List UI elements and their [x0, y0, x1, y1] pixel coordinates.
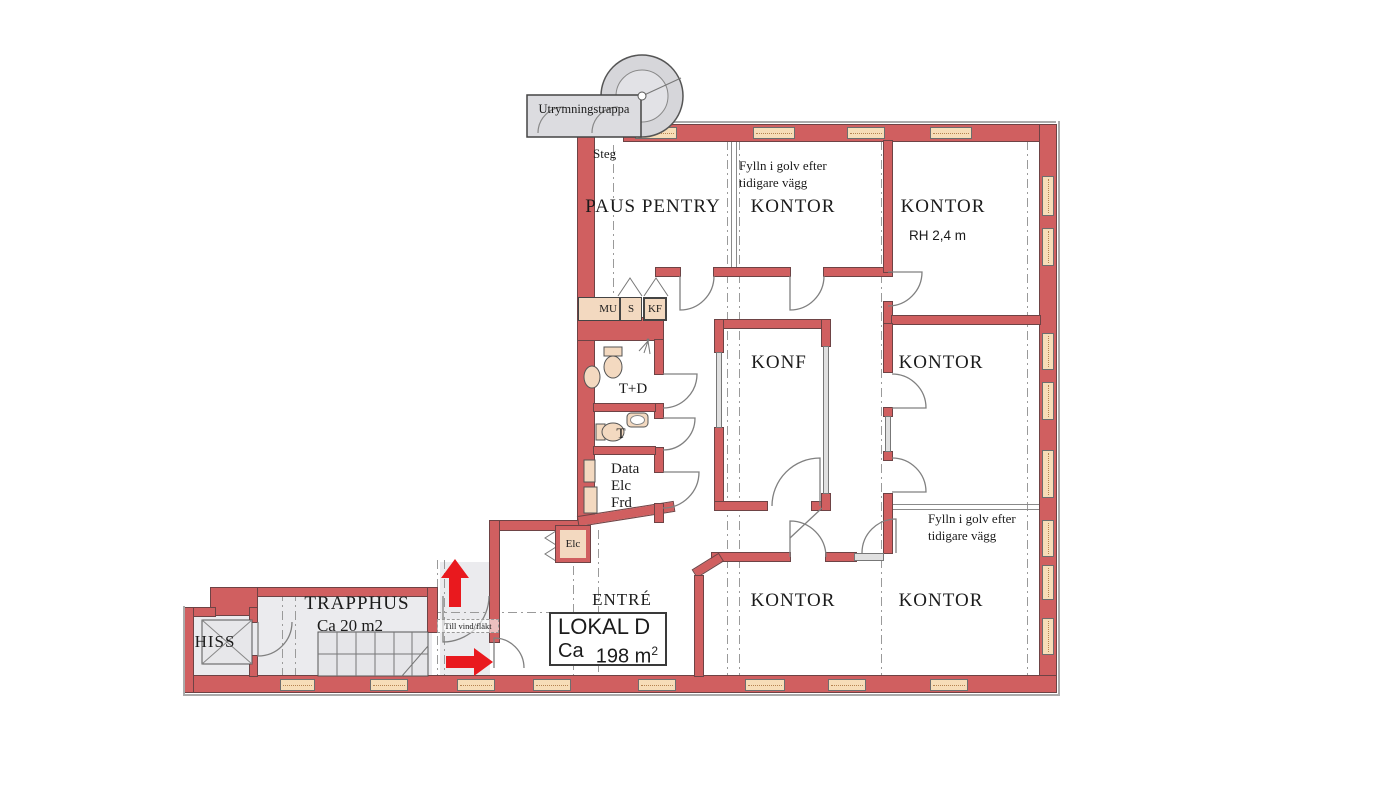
window	[280, 679, 315, 691]
glass-partition	[716, 352, 722, 428]
pentry-unit-sink: MU	[578, 297, 620, 321]
toilet-icon	[604, 347, 622, 356]
room-label-wc-dusch: T+D	[619, 381, 647, 398]
room-label-data: Data Elc Frd	[611, 461, 639, 512]
elc-closet-label: Elc	[566, 538, 581, 550]
room-label-kontor-top-right: KONTOR	[901, 196, 986, 218]
wall-segment	[822, 494, 830, 510]
room-label-trapphus: TRAPPHUS	[304, 593, 409, 615]
room-label-konf: KONF	[751, 352, 807, 374]
floor-plan: MU S KF Elc Utrymningstrappa Steg PAUS P…	[0, 0, 1373, 799]
label-trapphus-area: Ca 20 m2	[317, 616, 383, 636]
window	[638, 679, 676, 691]
door-arc	[680, 276, 714, 310]
note-line: Fylln i golv efter	[928, 511, 1016, 528]
wall-segment	[884, 141, 892, 272]
wall-segment	[884, 452, 892, 460]
wall-segment	[826, 553, 856, 561]
door-arc	[663, 418, 695, 450]
pentry-unit-label: KF	[648, 303, 662, 315]
window	[745, 679, 785, 691]
glass-partition	[854, 553, 884, 561]
reference-line	[295, 592, 296, 676]
window	[533, 679, 571, 691]
door-arc	[790, 521, 826, 557]
wall-segment	[428, 588, 437, 632]
window	[753, 127, 795, 139]
wall-segment	[624, 125, 1056, 141]
wall-segment	[250, 608, 257, 622]
former-wall-line	[892, 504, 1040, 510]
wall-segment	[655, 340, 663, 374]
note-line: Fylln i golv efter	[739, 158, 827, 175]
wall-segment	[884, 408, 892, 416]
pentry-unit-fridge: KF	[643, 297, 667, 321]
wall-segment	[250, 656, 257, 676]
wall-segment	[655, 404, 663, 418]
window	[1042, 228, 1054, 266]
note-till-vind: Till vind/fläkt	[437, 619, 499, 633]
room-label-kontor-top-mid: KONTOR	[751, 196, 836, 218]
window	[457, 679, 495, 691]
wall-segment	[715, 428, 723, 510]
wall-segment	[655, 448, 663, 472]
wall-segment	[824, 268, 892, 276]
window	[1042, 565, 1054, 600]
wall-segment	[656, 268, 680, 276]
wall-segment	[655, 504, 663, 522]
pentry-unit-label: MU	[599, 303, 617, 315]
pentry-unit-stove: S	[620, 297, 642, 321]
reference-line	[1027, 141, 1028, 676]
room-label-kontor-bottom-mid: KONTOR	[751, 590, 836, 612]
room-label-kontor-mid-right: KONTOR	[899, 352, 984, 374]
reference-line	[437, 560, 438, 676]
label-steg: Steg	[593, 146, 616, 162]
reference-line	[727, 141, 728, 676]
door-arc	[892, 374, 926, 408]
note-line: tidigare vägg	[928, 528, 1016, 545]
window	[1042, 176, 1054, 216]
wall-segment	[715, 320, 830, 328]
wall-segment	[822, 320, 830, 346]
reference-line	[739, 141, 740, 676]
glass-partition	[823, 346, 829, 494]
elc-closet: Elc	[556, 526, 590, 562]
room-label-entre: ENTRÉ	[592, 590, 652, 610]
door-arc	[494, 638, 524, 668]
shower-icon	[639, 341, 650, 354]
wall-segment	[884, 302, 892, 324]
note-line: tidigare vägg	[739, 175, 827, 192]
window	[930, 127, 972, 139]
data-room-line: Elc	[611, 478, 639, 495]
wall-segment	[594, 404, 655, 411]
wall-segment	[884, 324, 892, 372]
window	[635, 127, 677, 139]
wall-segment	[884, 494, 892, 553]
wall-segment	[715, 320, 723, 352]
lokal-area-prefix: Ca	[558, 639, 584, 669]
exterior-face-line	[183, 694, 1060, 696]
room-label-wc: T	[616, 426, 625, 443]
wall-segment	[185, 608, 193, 692]
door-arc	[790, 276, 824, 310]
exterior-face-line	[1058, 121, 1060, 696]
note-rh: RH 2,4 m	[909, 228, 966, 243]
lokal-area-value: 198 m2	[596, 639, 658, 669]
wall-segment	[715, 502, 767, 510]
window	[1042, 520, 1054, 557]
reference-line	[282, 592, 283, 676]
exterior-face-line	[578, 121, 1056, 123]
pentry-unit-label: S	[628, 303, 634, 315]
room-label-kontor-bottom-right: KONTOR	[899, 590, 984, 612]
former-wall-line	[731, 141, 737, 268]
reference-line	[881, 141, 882, 676]
window	[930, 679, 968, 691]
wall-segment	[892, 316, 1040, 324]
door-arc	[888, 272, 922, 306]
exterior-face-line	[183, 606, 185, 696]
toilet-icon	[596, 424, 605, 440]
note-fylln-bottom: Fylln i golv efter tidigare vägg	[928, 511, 1016, 545]
wall-segment	[712, 553, 790, 561]
wall-segment	[693, 554, 723, 577]
window	[847, 127, 885, 139]
data-room-line: Frd	[611, 495, 639, 512]
window	[1042, 382, 1054, 420]
note-fylln-top: Fylln i golv efter tidigare vägg	[739, 158, 827, 192]
window	[1042, 450, 1054, 498]
window	[1042, 333, 1054, 370]
label-escape-stair: Utrymningstrappa	[529, 102, 639, 117]
door-arc	[772, 458, 822, 538]
window	[828, 679, 866, 691]
wall-segment	[594, 447, 655, 454]
window	[1042, 618, 1054, 655]
window	[370, 679, 408, 691]
sink-icon	[627, 413, 648, 427]
lokal-name: LOKAL D	[558, 615, 658, 639]
lokal-area: Ca 198 m2	[558, 639, 658, 669]
data-room-line: Data	[611, 461, 639, 478]
glass-partition	[885, 416, 891, 452]
door-arc	[892, 458, 926, 492]
reference-line	[613, 145, 614, 300]
wall-segment	[185, 676, 1056, 692]
room-label-paus-pentry: PAUS PENTRY	[585, 196, 720, 218]
lokal-info-box: LOKAL D Ca 198 m2	[549, 612, 667, 666]
wall-segment	[695, 576, 703, 676]
wall-segment	[714, 268, 790, 276]
door-arc	[663, 374, 697, 408]
wall-segment	[578, 318, 663, 340]
room-label-hiss: HISS	[195, 632, 236, 652]
